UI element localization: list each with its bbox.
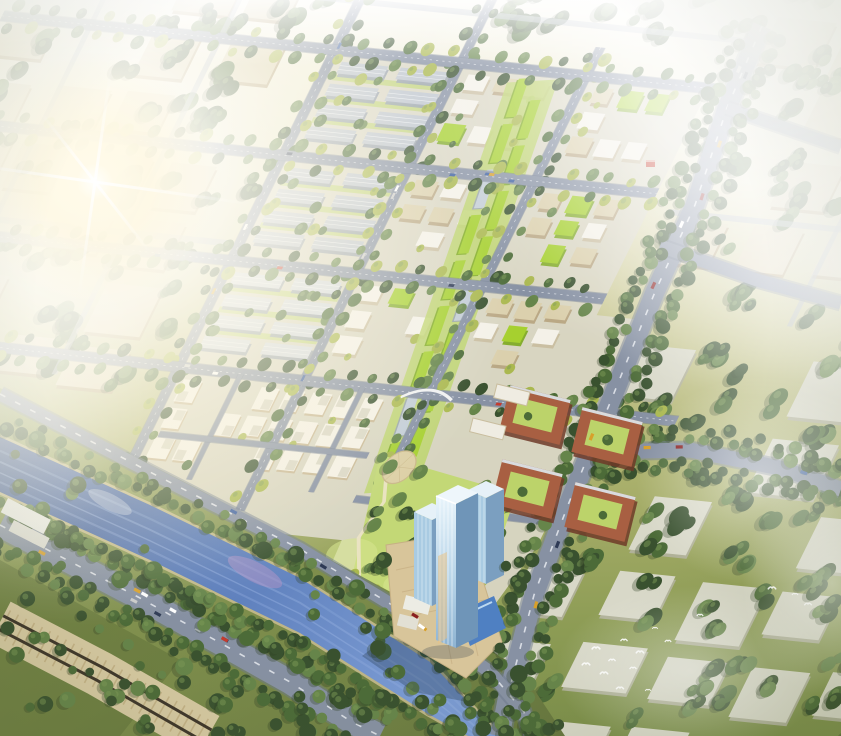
tree-highlight — [484, 673, 490, 679]
tree-highlight — [766, 66, 771, 71]
tree-highlight — [515, 558, 520, 563]
tree — [675, 198, 685, 208]
tree-highlight — [622, 294, 627, 299]
tree — [514, 556, 525, 567]
tree — [38, 570, 51, 583]
tree-highlight — [163, 636, 167, 640]
tree — [812, 502, 824, 514]
tree-highlight — [521, 542, 526, 547]
tree-highlight — [284, 703, 290, 709]
tree — [743, 438, 753, 448]
tree — [696, 229, 705, 238]
tree-highlight — [652, 467, 656, 471]
tree-highlight — [271, 644, 276, 649]
tree-highlight — [29, 553, 35, 559]
tree — [257, 693, 271, 707]
tree — [111, 463, 120, 472]
tree — [752, 73, 766, 87]
tree-highlight — [138, 474, 143, 479]
tree — [638, 462, 649, 473]
tree — [669, 461, 680, 472]
tree — [69, 575, 83, 589]
tree — [708, 216, 722, 230]
tree — [789, 441, 802, 454]
tree — [192, 511, 205, 524]
tree — [235, 519, 247, 531]
tree-highlight — [86, 584, 91, 589]
tree — [781, 476, 794, 489]
tree — [701, 86, 715, 100]
tree-highlight — [216, 655, 222, 661]
tree-highlight — [278, 554, 283, 559]
tree-highlight — [40, 572, 45, 577]
tree — [208, 663, 219, 674]
tree — [55, 436, 67, 448]
tree — [547, 616, 558, 627]
tree-highlight — [497, 718, 503, 724]
tree-highlight — [202, 656, 207, 661]
tree — [710, 171, 723, 184]
tree-highlight — [725, 427, 730, 432]
tree-highlight — [270, 693, 276, 699]
tree-highlight — [669, 302, 674, 307]
tree — [599, 355, 610, 366]
tree — [774, 444, 783, 453]
tree — [270, 642, 282, 654]
tree-highlight — [203, 522, 208, 527]
tree — [366, 609, 375, 618]
tree-highlight — [700, 476, 705, 481]
tree-highlight — [752, 450, 757, 455]
tree — [684, 468, 693, 477]
tree — [728, 165, 737, 174]
tree-highlight — [749, 110, 754, 115]
tree-highlight — [786, 456, 792, 462]
tree — [229, 603, 244, 618]
tree-highlight — [657, 338, 663, 344]
tree — [656, 320, 670, 334]
tree — [733, 39, 745, 51]
tree — [49, 521, 62, 534]
tree — [313, 575, 324, 586]
tree — [560, 451, 572, 463]
tree — [762, 483, 775, 496]
tree-highlight — [505, 707, 510, 712]
tree — [803, 489, 815, 501]
tree-highlight — [241, 535, 247, 541]
tree-highlight — [650, 426, 654, 430]
tree — [621, 300, 633, 312]
tree-highlight — [258, 534, 263, 539]
tree-highlight — [195, 591, 201, 597]
tree-highlight — [789, 489, 794, 494]
tree-highlight — [782, 477, 787, 482]
tree-highlight — [726, 181, 732, 187]
tree — [215, 602, 228, 615]
tree-highlight — [657, 250, 662, 255]
tree-highlight — [735, 40, 740, 45]
tree — [78, 590, 89, 601]
tree — [675, 161, 690, 176]
scene-canvas — [0, 0, 841, 736]
tree — [750, 448, 763, 461]
tree-highlight — [120, 477, 126, 483]
tree — [50, 579, 60, 589]
tree — [686, 261, 697, 272]
tree — [243, 677, 256, 690]
tree-highlight — [482, 702, 487, 707]
tree — [95, 471, 107, 483]
tree-highlight — [98, 545, 103, 550]
tree — [706, 73, 715, 82]
tree-highlight — [264, 637, 269, 642]
tree — [136, 472, 148, 484]
tree-highlight — [563, 562, 568, 567]
tree — [205, 592, 216, 603]
tree — [724, 45, 734, 55]
tree-highlight — [726, 144, 731, 149]
tree — [274, 698, 284, 708]
tree — [680, 418, 692, 430]
tree-highlight — [287, 650, 292, 655]
tree-highlight — [245, 679, 250, 684]
tree — [519, 540, 531, 552]
tree-highlight — [714, 85, 720, 91]
tree-highlight — [633, 367, 637, 371]
tree-highlight — [596, 469, 601, 474]
tree — [699, 128, 709, 138]
tree — [681, 271, 696, 286]
tree — [628, 275, 637, 284]
tree — [710, 436, 724, 450]
tree-highlight — [51, 523, 56, 528]
tree — [336, 664, 346, 674]
tree-highlight — [207, 594, 211, 598]
tree — [21, 564, 34, 577]
tree — [723, 425, 736, 438]
tree — [671, 289, 683, 301]
tree-highlight — [712, 438, 717, 443]
tree — [787, 488, 799, 500]
tree-highlight — [723, 27, 728, 32]
tree — [755, 433, 766, 444]
tree-highlight — [771, 476, 776, 481]
tree-highlight — [600, 371, 606, 377]
tree-highlight — [289, 635, 295, 641]
tree — [632, 389, 645, 402]
tree-highlight — [237, 521, 242, 526]
tree — [60, 450, 72, 462]
tree — [503, 705, 515, 717]
tree — [702, 458, 713, 469]
tree — [86, 451, 94, 459]
tree-highlight — [650, 354, 656, 360]
tree — [817, 457, 832, 472]
tree-highlight — [631, 287, 636, 292]
tree-highlight — [178, 638, 183, 643]
tree — [317, 713, 328, 724]
tree — [734, 132, 747, 145]
tree — [525, 553, 540, 568]
tree — [690, 118, 701, 129]
tree — [263, 620, 274, 631]
tree-highlight — [150, 629, 156, 635]
tree-highlight — [85, 467, 90, 472]
tree — [648, 352, 662, 366]
tree — [607, 327, 619, 339]
tree — [527, 523, 536, 532]
tree-highlight — [819, 460, 825, 466]
tree — [481, 671, 496, 686]
tree-highlight — [135, 610, 140, 615]
tree — [706, 428, 716, 438]
tree — [239, 533, 253, 547]
tree — [220, 510, 229, 519]
tree-highlight — [62, 452, 67, 457]
tree-highlight — [657, 312, 662, 317]
tree-highlight — [692, 462, 697, 467]
tree — [699, 209, 709, 219]
tree — [641, 378, 652, 389]
tree-highlight — [622, 407, 628, 413]
tree — [95, 602, 105, 612]
tree-highlight — [732, 476, 737, 481]
tree — [659, 197, 668, 206]
tree — [764, 64, 776, 76]
tree — [201, 520, 215, 534]
tree — [703, 115, 712, 124]
tree-highlight — [231, 605, 237, 611]
tree — [642, 365, 653, 376]
tree — [541, 634, 551, 644]
tree-highlight — [334, 589, 339, 594]
tree — [766, 48, 778, 60]
tree-highlight — [96, 473, 101, 478]
tree-highlight — [623, 302, 628, 307]
tree — [161, 635, 172, 646]
tree — [747, 108, 758, 119]
tree — [666, 222, 677, 233]
tree-highlight — [814, 504, 819, 509]
tree-highlight — [609, 472, 615, 478]
tree — [687, 143, 700, 156]
tree — [170, 580, 183, 593]
tree — [119, 612, 133, 626]
tree — [737, 118, 747, 128]
tree — [649, 424, 660, 435]
tree-highlight — [736, 134, 741, 139]
tree-highlight — [326, 731, 331, 736]
tree — [645, 246, 657, 258]
tree-highlight — [556, 585, 562, 591]
tree-highlight — [530, 539, 535, 544]
tree — [607, 469, 622, 484]
tree — [256, 532, 267, 543]
tree-highlight — [647, 248, 652, 253]
tree — [691, 163, 701, 173]
tree — [751, 90, 761, 100]
tree-highlight — [688, 235, 693, 240]
tree — [659, 458, 669, 468]
tree-highlight — [806, 452, 812, 458]
tree-highlight — [732, 154, 738, 160]
tree-highlight — [494, 660, 498, 664]
tree-highlight — [754, 75, 760, 81]
tree-highlight — [301, 570, 307, 576]
tree — [526, 651, 536, 661]
tree — [83, 538, 94, 549]
tree-highlight — [219, 527, 224, 532]
tree — [730, 474, 742, 486]
tree — [549, 594, 562, 607]
tree — [740, 468, 749, 477]
tree-highlight — [2, 425, 8, 431]
tree — [710, 472, 723, 485]
tree-highlight — [609, 329, 614, 334]
tree — [71, 460, 80, 469]
tree-highlight — [527, 555, 533, 561]
tree — [96, 543, 108, 555]
tree — [773, 34, 786, 47]
tree — [591, 377, 601, 387]
tree — [650, 465, 661, 476]
tree — [668, 176, 681, 189]
tree — [614, 314, 625, 325]
tree — [729, 152, 743, 166]
tree-highlight — [542, 648, 548, 654]
tree — [822, 490, 837, 505]
tree-highlight — [144, 621, 149, 626]
tree-highlight — [217, 604, 222, 609]
tree — [562, 571, 574, 583]
tree-highlight — [123, 557, 129, 563]
tree — [117, 474, 132, 489]
tree — [721, 25, 734, 38]
tree — [745, 480, 758, 493]
tree-highlight — [353, 705, 358, 710]
tree-highlight — [710, 218, 715, 223]
tree-highlight — [712, 173, 717, 178]
tree — [666, 188, 678, 200]
tree — [15, 418, 23, 426]
tree-highlight — [567, 552, 573, 558]
tree — [714, 197, 727, 210]
tree — [539, 646, 553, 660]
tree — [685, 434, 694, 443]
tree — [621, 324, 632, 335]
tree — [668, 424, 678, 434]
tree-highlight — [644, 237, 649, 242]
tree — [636, 267, 645, 276]
tree-highlight — [687, 262, 692, 267]
tree — [306, 558, 317, 569]
tree-highlight — [647, 337, 652, 342]
tree-highlight — [716, 198, 721, 203]
tree — [642, 235, 654, 247]
tree — [726, 59, 736, 69]
tree-highlight — [452, 673, 457, 678]
tree-highlight — [539, 603, 544, 608]
tree-highlight — [712, 474, 717, 479]
tree — [323, 672, 337, 686]
tree-highlight — [225, 679, 230, 684]
tree — [194, 499, 203, 508]
tree — [657, 220, 666, 229]
tree-highlight — [255, 621, 260, 626]
tree-highlight — [110, 612, 115, 617]
tree — [331, 576, 342, 587]
tree — [354, 603, 366, 615]
tree-highlight — [121, 614, 127, 620]
tree-highlight — [563, 573, 568, 578]
tree — [606, 345, 615, 354]
tree-highlight — [325, 674, 330, 679]
tree — [520, 701, 530, 711]
tree-highlight — [335, 685, 340, 690]
tree — [258, 685, 267, 694]
tree — [716, 55, 725, 64]
tree — [583, 386, 595, 398]
tree — [697, 240, 710, 253]
tree-highlight — [658, 232, 663, 237]
tree-highlight — [742, 22, 746, 26]
tree — [492, 658, 503, 669]
tree-highlight — [692, 120, 697, 125]
tree — [564, 537, 574, 547]
tree — [490, 690, 498, 698]
tree — [220, 662, 231, 673]
tree-highlight — [72, 534, 77, 539]
tree — [742, 98, 752, 108]
tree — [703, 103, 714, 114]
tree — [5, 550, 16, 561]
tree — [532, 659, 546, 673]
tree — [380, 607, 389, 616]
tree — [108, 551, 119, 562]
tree-highlight — [210, 664, 214, 668]
tree-highlight — [721, 160, 727, 166]
tree-highlight — [192, 642, 198, 648]
tree-highlight — [166, 594, 170, 598]
tree-highlight — [406, 709, 411, 714]
tree — [741, 21, 752, 32]
tree — [784, 454, 798, 468]
tree — [685, 131, 700, 146]
tree — [665, 209, 674, 218]
tree-highlight — [791, 443, 796, 448]
tree — [191, 650, 202, 661]
tree-highlight — [634, 390, 639, 395]
tree — [654, 336, 669, 351]
tree — [181, 504, 191, 514]
aerial-masterplan-rendering — [0, 0, 841, 736]
tree — [656, 230, 668, 242]
tree — [680, 247, 694, 261]
tree — [668, 310, 678, 320]
tree — [655, 248, 668, 261]
tree — [724, 179, 738, 193]
tree — [480, 700, 492, 712]
tree — [719, 68, 733, 82]
tree — [169, 647, 178, 656]
